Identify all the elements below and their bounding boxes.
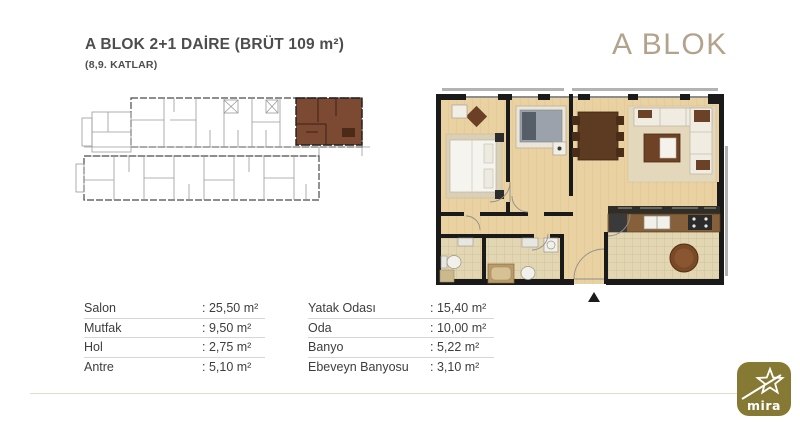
table-row: Banyo : 5,22 m² <box>308 338 494 358</box>
room-label: Banyo <box>308 340 430 354</box>
room-label: Yatak Odası <box>308 301 430 315</box>
table-row: Mutfak : 9,50 m² <box>84 319 265 339</box>
footer-divider <box>30 393 758 394</box>
key-plan-image <box>74 88 378 214</box>
page-title: A BLOK 2+1 DAİRE (BRÜT 109 m²) <box>85 36 344 54</box>
areas-table-right: Yatak Odası : 15,40 m² Oda : 10,00 m² Ba… <box>308 299 494 377</box>
block-heading: A BLOK <box>612 28 772 62</box>
room-area: : 2,75 m² <box>202 340 265 354</box>
room-label: Ebeveyn Banyosu <box>308 360 430 374</box>
room-label: Oda <box>308 321 430 335</box>
table-row: Ebeveyn Banyosu : 3,10 m² <box>308 358 494 378</box>
areas-table-left: Salon : 25,50 m² Mutfak : 9,50 m² Hol : … <box>84 299 265 377</box>
kitchen-floor <box>608 232 720 281</box>
brochure-slide: A BLOK 2+1 DAİRE (BRÜT 109 m²) (8,9. KAT… <box>0 0 800 425</box>
floor-plan-image <box>432 86 728 306</box>
room-label: Salon <box>84 301 202 315</box>
room-label: Mutfak <box>84 321 202 335</box>
room-area: : 25,50 m² <box>202 301 265 315</box>
room-label: Hol <box>84 340 202 354</box>
table-row: Salon : 25,50 m² <box>84 299 265 319</box>
mira-logo: mira <box>737 362 791 416</box>
room-area: : 10,00 m² <box>430 321 494 335</box>
room-label: Antre <box>84 360 202 374</box>
middle-room-furniture <box>516 106 566 155</box>
table-row: Antre : 5,10 m² <box>84 358 265 378</box>
table-row: Yatak Odası : 15,40 m² <box>308 299 494 319</box>
entrance-arrow-icon <box>588 292 600 302</box>
table-row: Hol : 2,75 m² <box>84 338 265 358</box>
logo-text: mira <box>747 398 781 413</box>
room-area: : 5,22 m² <box>430 340 494 354</box>
room-area: : 15,40 m² <box>430 301 494 315</box>
page-subtitle: (8,9. KATLAR) <box>85 59 157 71</box>
table-row: Oda : 10,00 m² <box>308 319 494 339</box>
room-area: : 3,10 m² <box>430 360 494 374</box>
highlighted-unit <box>296 98 362 145</box>
room-area: : 5,10 m² <box>202 360 265 374</box>
room-area: : 9,50 m² <box>202 321 265 335</box>
